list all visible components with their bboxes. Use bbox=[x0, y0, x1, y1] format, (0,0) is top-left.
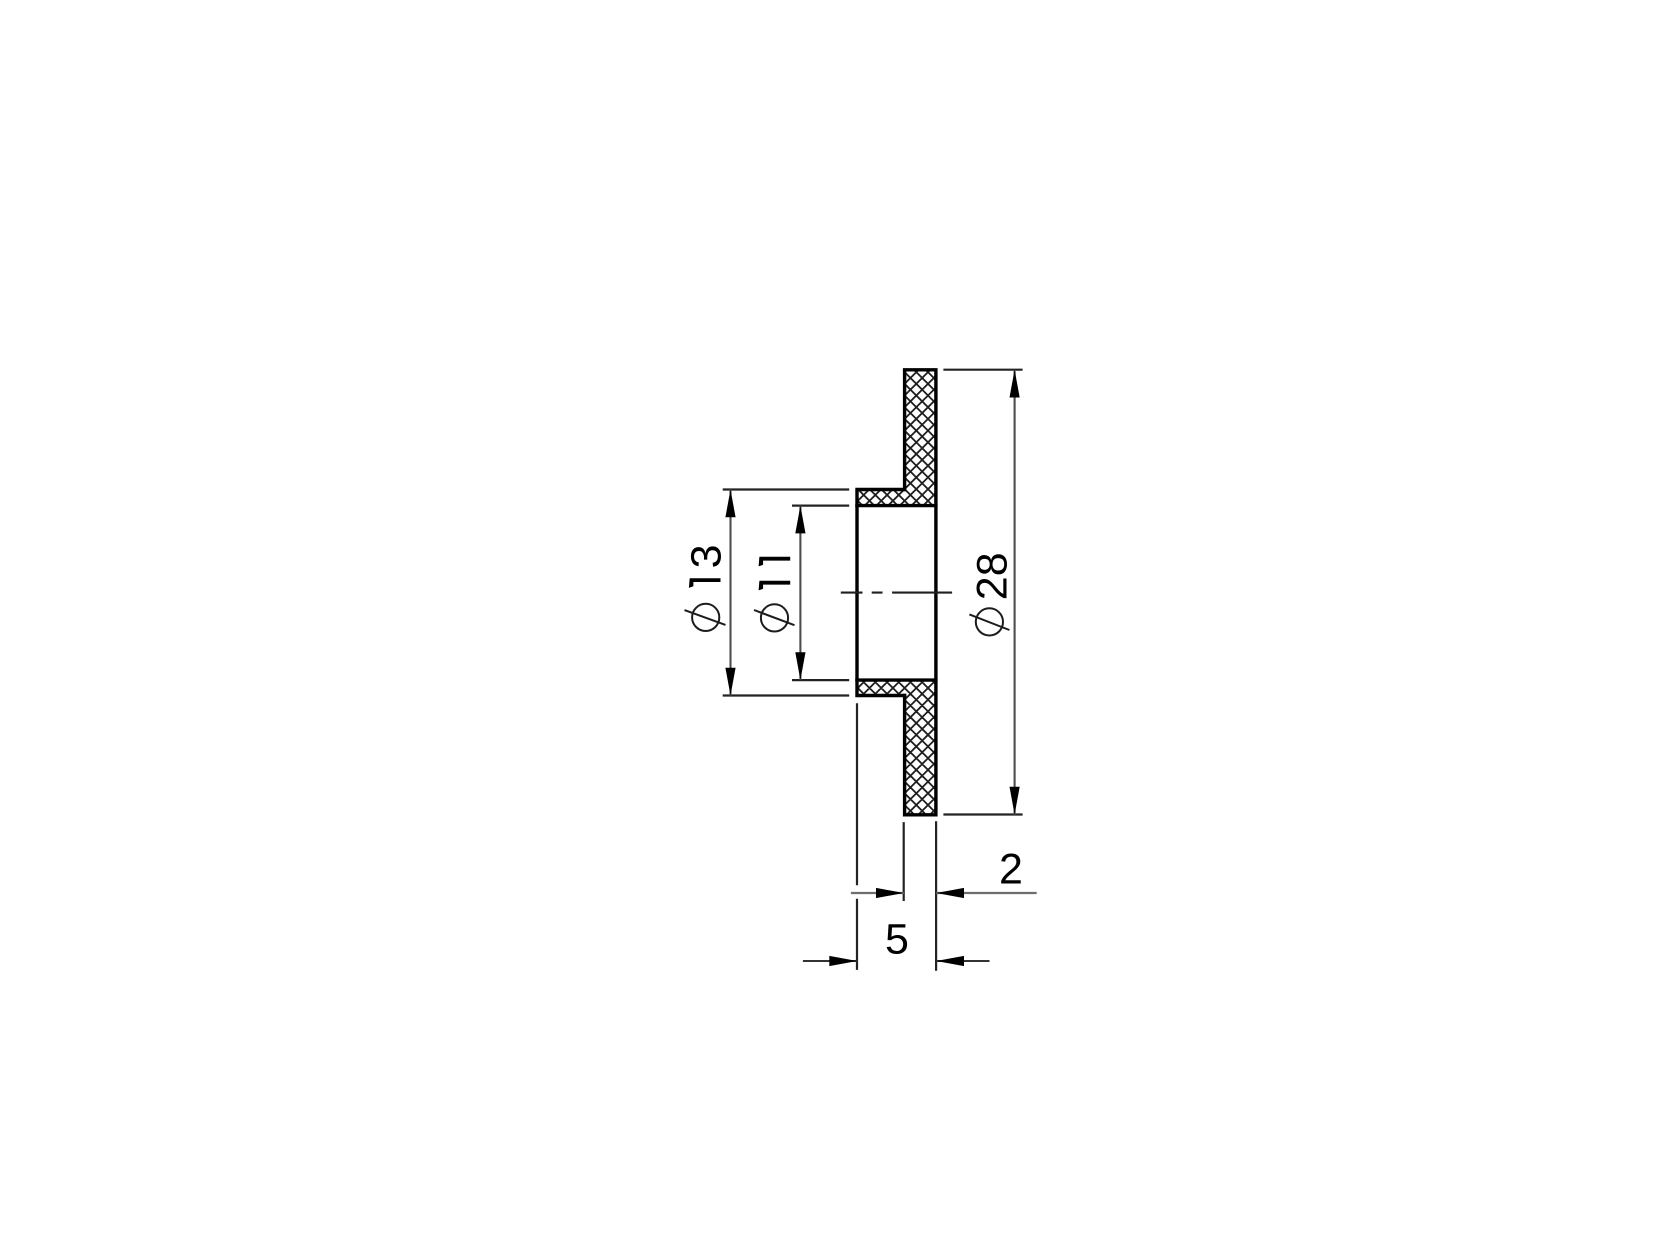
svg-text:3: 3 bbox=[682, 544, 730, 568]
svg-text:28: 28 bbox=[969, 552, 1017, 600]
svg-text:2: 2 bbox=[999, 845, 1023, 893]
svg-text:5: 5 bbox=[885, 915, 909, 963]
